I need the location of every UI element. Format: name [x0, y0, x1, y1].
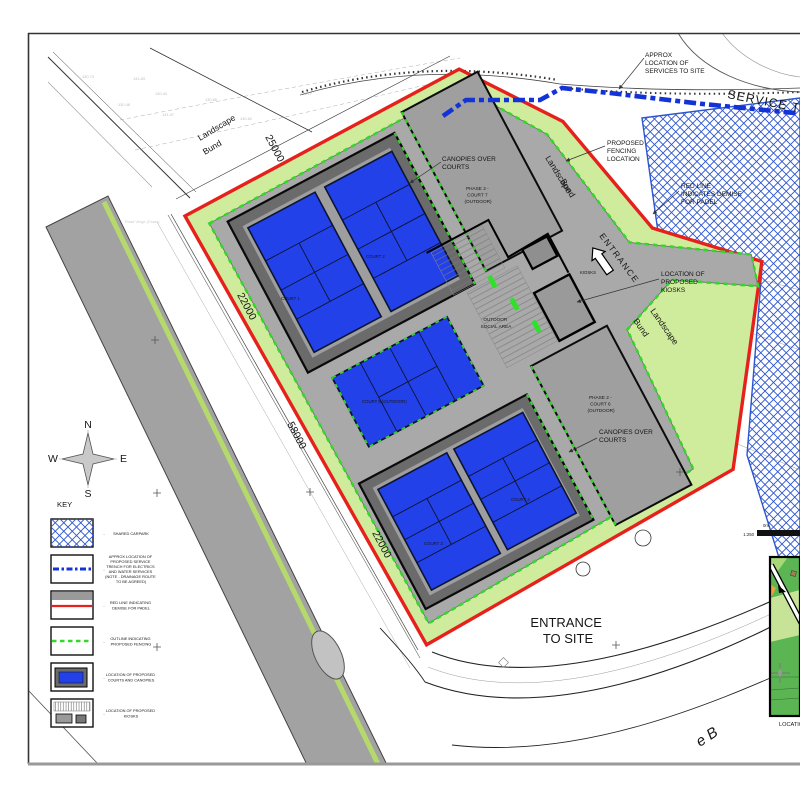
- legend-label-courts: LOCATION OF PROPOSED COURTS AND CANOPIES: [106, 672, 156, 683]
- phase2-court7-label: PHASE 2 - COURT 7 (OUTDOOR): [464, 186, 492, 204]
- legend-label-redline: RED LINE INDICATING DEMISE FOR PADEL: [110, 600, 152, 611]
- svg-text:130.88: 130.88: [205, 97, 217, 102]
- site-plan-drawing: 130.73 131.83 130.48 130.44 131.47 130.8…: [0, 0, 800, 800]
- court4-label: COURT 4: [511, 497, 530, 502]
- compass-w: W: [48, 453, 58, 465]
- scale-ratio: 1:250: [743, 532, 754, 537]
- compass-s: S: [84, 488, 91, 500]
- key-title: KEY: [57, 500, 72, 509]
- compass-e: E: [120, 453, 127, 465]
- svg-text:130.44: 130.44: [155, 91, 168, 96]
- svg-text:131.83: 131.83: [133, 76, 145, 81]
- svg-text:130.73: 130.73: [82, 74, 94, 79]
- svg-text:130.48: 130.48: [118, 102, 130, 107]
- inset-caption: LOCATION: [779, 722, 800, 728]
- tree-symbol: [635, 530, 651, 546]
- phase2-court6-label: PHASE 2 - COURT 6 (OUTDOOR): [587, 395, 615, 413]
- legend-label-carpark: SHARED CARPARK: [113, 531, 149, 536]
- court3-label: COURT 3: [424, 541, 443, 546]
- road-verge-label: Road Verge (Grass): [125, 219, 160, 224]
- legend-label-fencing: OUTLINE INDICATING PROPOSED FENCING: [110, 636, 151, 647]
- svg-text:131.17: 131.17: [300, 91, 312, 96]
- location-inset-map: LOCATION: [770, 557, 800, 728]
- court1-label: COURT 1: [281, 296, 300, 301]
- court2-label: COURT 2: [366, 254, 385, 259]
- svg-text:130.82: 130.82: [240, 116, 252, 121]
- court5-label: COURT 5 (OUTDOOR): [362, 399, 407, 404]
- kiosks-label: KIOSKS: [580, 270, 596, 275]
- map-building: [791, 571, 797, 577]
- site-plan-sheet: 130.73 131.83 130.48 130.44 131.47 130.8…: [0, 0, 800, 800]
- svg-text:131.47: 131.47: [162, 112, 174, 117]
- scale-zero: 0m: [763, 523, 769, 528]
- tree-symbol: [576, 562, 590, 576]
- compass-n: N: [84, 419, 92, 431]
